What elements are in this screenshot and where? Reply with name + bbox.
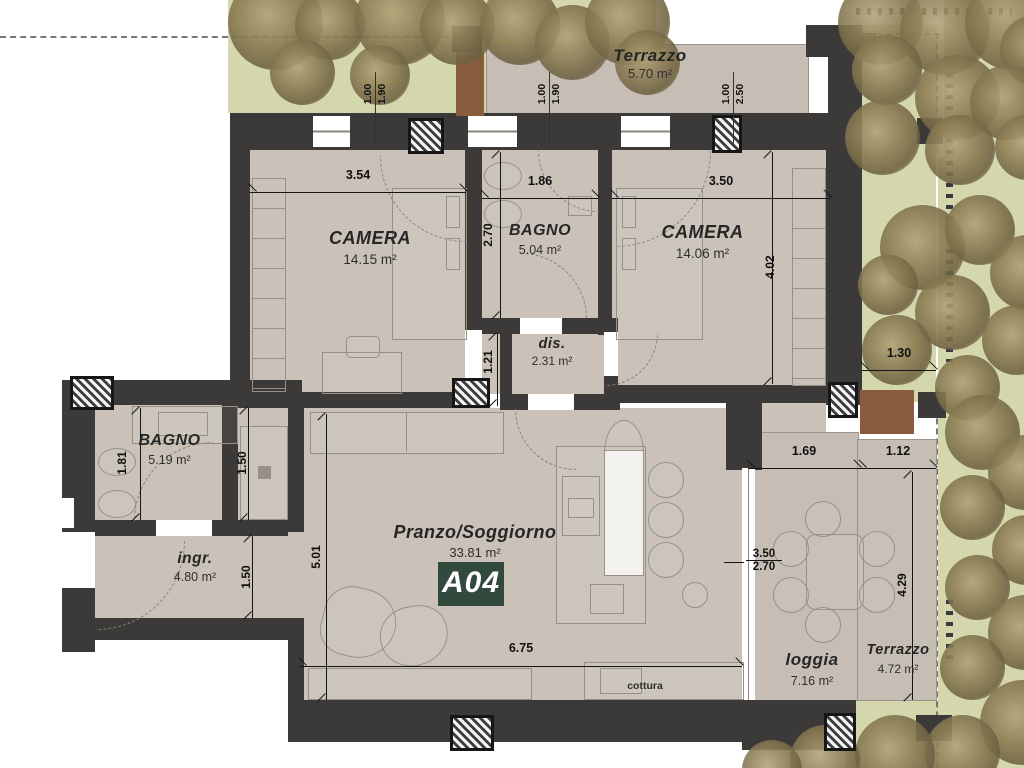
wall-segment xyxy=(465,145,482,335)
sideboard xyxy=(308,668,532,700)
dim-label: 3.50 xyxy=(612,174,830,188)
pillar-hatched xyxy=(712,115,742,153)
unit-badge: A04 xyxy=(438,562,504,606)
planter xyxy=(860,390,914,434)
tree xyxy=(270,40,335,105)
island-sink xyxy=(590,584,624,614)
dim-label: 1.90 xyxy=(376,74,388,114)
chair xyxy=(859,531,895,567)
room-label-soggiorno: Pranzo/Soggiorno xyxy=(350,522,600,543)
desk xyxy=(322,352,402,394)
tree xyxy=(940,475,1005,540)
tree xyxy=(852,35,922,105)
oven xyxy=(568,498,594,518)
room-area-bagno1: 5.04 m² xyxy=(482,243,598,257)
room-label-bagno1: BAGNO xyxy=(482,222,598,240)
chair xyxy=(805,607,841,643)
wall-segment xyxy=(726,392,762,470)
door-opening xyxy=(465,330,482,378)
floor-plan: Terrazzo 5.70 m² CAMERA 14.15 m² BAGNO 5… xyxy=(0,0,1024,768)
dim-label: 4.02 xyxy=(763,247,777,287)
room-area-loggia: 7.16 m² xyxy=(762,674,862,688)
dim-line xyxy=(612,198,830,199)
chair xyxy=(805,501,841,537)
room-label-dis: dis. xyxy=(500,336,604,352)
pillar-hatched xyxy=(452,378,490,408)
dim-fraction-bottom: 2.70 xyxy=(746,561,782,573)
dim-label: 6.75 xyxy=(300,641,742,655)
kitchen-label: cottura xyxy=(610,680,680,692)
dim-line xyxy=(250,192,466,193)
door-opening xyxy=(156,520,212,536)
dim-label: 1.00 xyxy=(362,74,374,114)
dim-line xyxy=(860,468,936,469)
dim-label: 1.81 xyxy=(115,443,129,483)
dim-line xyxy=(862,370,936,371)
room-label-camera1: CAMERA xyxy=(280,228,460,249)
room-label-camera2: CAMERA xyxy=(620,222,785,243)
dim-fraction-top: 3.50 xyxy=(746,548,782,561)
window-notch xyxy=(62,498,74,528)
room-area-terrazzo-top: 5.70 m² xyxy=(560,66,740,81)
dim-label: 3.54 xyxy=(298,168,418,182)
floor-lamp xyxy=(682,582,708,608)
pillow xyxy=(446,196,460,228)
dim-line xyxy=(748,468,860,469)
tree xyxy=(845,100,920,175)
stool xyxy=(648,542,684,578)
dim-label: 2.70 xyxy=(481,215,495,255)
chair xyxy=(773,577,809,613)
stool xyxy=(648,462,684,498)
entry-door-opening xyxy=(62,532,95,588)
niche-floor xyxy=(762,400,826,433)
room-label-terrazzo-top: Terrazzo xyxy=(560,46,740,66)
sofa-cushion-line xyxy=(406,412,407,452)
room-area-ingresso: 4.80 m² xyxy=(140,570,250,584)
wardrobe xyxy=(792,168,826,386)
room-label-terrazzo2: Terrazzo xyxy=(854,642,942,658)
dim-label: 1.30 xyxy=(862,346,936,360)
wall-segment xyxy=(598,145,612,335)
wardrobe xyxy=(252,178,286,392)
window xyxy=(621,116,670,147)
window xyxy=(468,116,517,147)
dining-table xyxy=(806,534,864,610)
dim-label: 1.21 xyxy=(481,342,495,382)
dim-line xyxy=(300,666,742,667)
room-label-ingresso: ingr. xyxy=(140,550,250,568)
dim-label: 1.00 xyxy=(536,74,548,114)
tree xyxy=(925,115,995,185)
room-area-camera1: 14.15 m² xyxy=(280,252,460,267)
dim-label: 5.01 xyxy=(309,537,323,577)
room-area-bagno2: 5.19 m² xyxy=(112,453,227,467)
dim-pointer xyxy=(724,562,744,563)
door-opening xyxy=(520,318,562,334)
pillar-hatched xyxy=(70,376,114,410)
tree xyxy=(858,255,918,315)
boundary-dashed-line xyxy=(936,388,938,768)
sofa xyxy=(310,412,504,454)
dim-fraction: 3.50 2.70 xyxy=(746,548,782,573)
dim-line xyxy=(326,414,327,700)
pillar-hatched xyxy=(824,713,856,751)
wall-segment xyxy=(230,113,250,408)
room-label-bagno2: BAGNO xyxy=(112,432,227,450)
window xyxy=(313,116,350,147)
pillar-hatched xyxy=(450,715,494,751)
dim-label: 1.90 xyxy=(550,74,562,114)
stool xyxy=(648,502,684,538)
pillar-hatched xyxy=(828,382,858,418)
dim-line xyxy=(497,334,498,406)
pillar-hatched xyxy=(408,118,444,154)
room-label-loggia: loggia xyxy=(762,650,862,670)
dim-label: 1.69 xyxy=(748,444,860,458)
bidet xyxy=(98,490,136,518)
passage-opening xyxy=(288,532,304,618)
room-area-soggiorno: 33.81 m² xyxy=(350,545,600,560)
wall-segment xyxy=(288,700,768,742)
chair xyxy=(346,336,380,358)
wall-segment xyxy=(612,385,830,403)
dim-label: 4.29 xyxy=(895,565,909,605)
room-area-terrazzo2: 4.72 m² xyxy=(854,662,942,676)
chair xyxy=(859,577,895,613)
kitchen-island-counter xyxy=(604,450,644,576)
dim-label: 1.00 xyxy=(720,74,732,114)
room-area-camera2: 14.06 m² xyxy=(620,246,785,261)
room-area-dis: 2.31 m² xyxy=(500,354,604,368)
dim-label: 1.50 xyxy=(239,557,253,597)
dim-label: 1.86 xyxy=(482,174,598,188)
dim-label: 2.50 xyxy=(734,74,746,114)
dim-label: 1.12 xyxy=(860,444,936,458)
dim-label: 1.50 xyxy=(235,443,249,483)
door-opening xyxy=(528,394,574,410)
shower-drain xyxy=(258,466,271,479)
